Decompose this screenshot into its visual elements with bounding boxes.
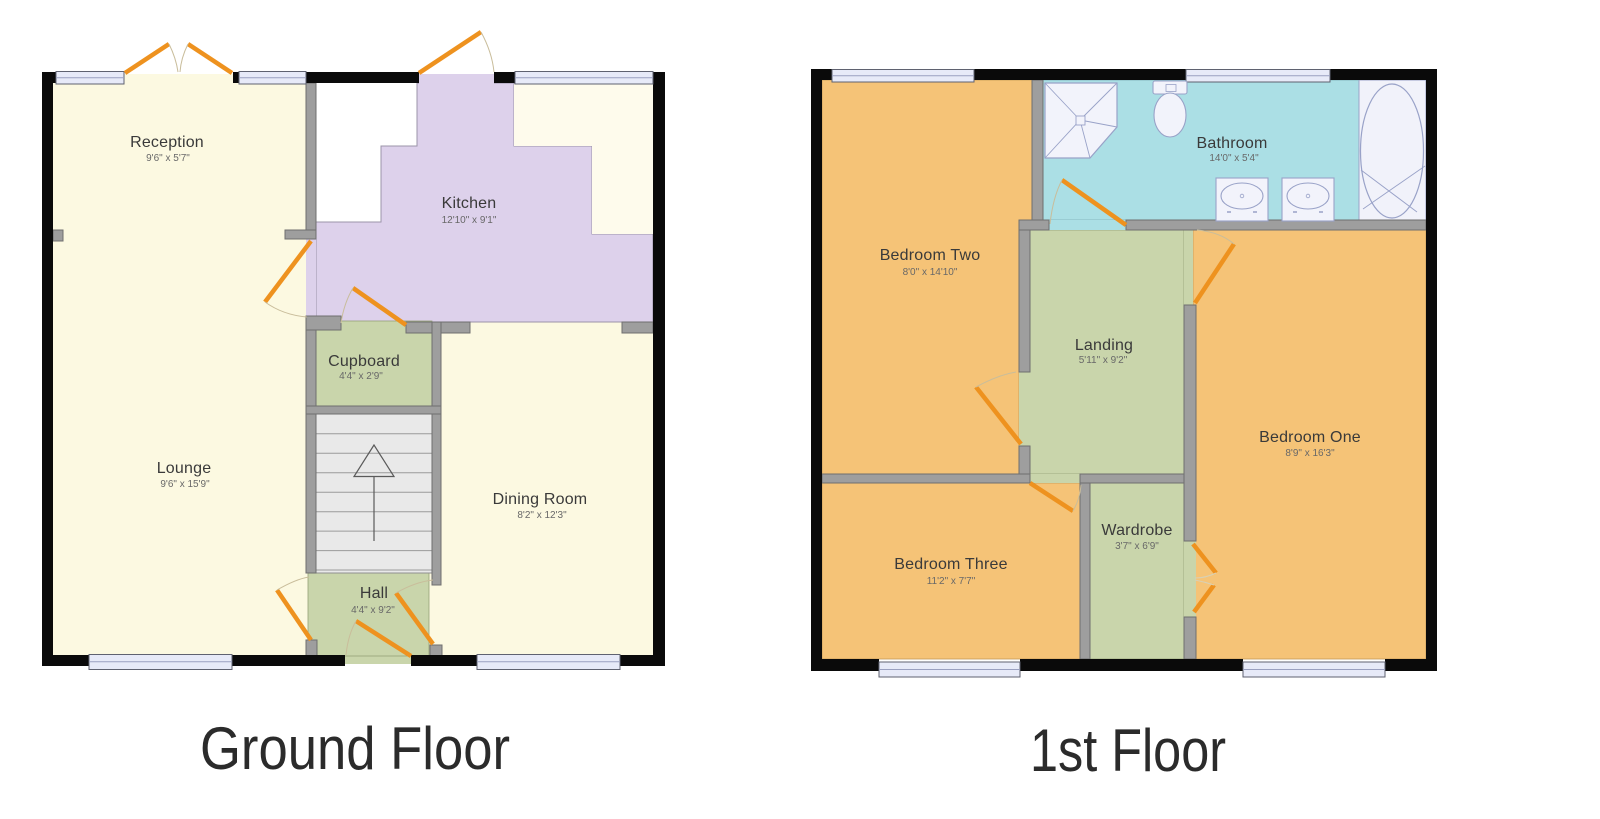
svg-text:1st Floor: 1st Floor bbox=[1030, 717, 1226, 784]
svg-text:Landing: Landing bbox=[1075, 337, 1133, 354]
svg-text:4'4" x 9'2": 4'4" x 9'2" bbox=[351, 605, 395, 616]
svg-text:3'7" x 6'9": 3'7" x 6'9" bbox=[1115, 541, 1159, 552]
svg-text:Bedroom One: Bedroom One bbox=[1259, 429, 1361, 446]
svg-text:Kitchen: Kitchen bbox=[442, 195, 497, 212]
svg-text:Ground Floor: Ground Floor bbox=[200, 715, 510, 782]
svg-text:5'11" x 9'2": 5'11" x 9'2" bbox=[1079, 355, 1128, 366]
svg-text:9'6" x 15'9": 9'6" x 15'9" bbox=[160, 479, 210, 490]
svg-text:14'0" x 5'4": 14'0" x 5'4" bbox=[1209, 153, 1259, 164]
svg-text:8'9" x 16'3": 8'9" x 16'3" bbox=[1285, 448, 1335, 459]
svg-text:Wardrobe: Wardrobe bbox=[1101, 522, 1172, 539]
svg-text:Lounge: Lounge bbox=[157, 460, 212, 477]
svg-text:Hall: Hall bbox=[360, 585, 388, 602]
svg-text:Bedroom Three: Bedroom Three bbox=[894, 556, 1007, 573]
svg-text:Dining Room: Dining Room bbox=[493, 491, 588, 508]
svg-text:8'2" x 12'3": 8'2" x 12'3" bbox=[517, 510, 567, 521]
svg-text:4'4" x 2'9": 4'4" x 2'9" bbox=[339, 371, 383, 382]
svg-text:Reception: Reception bbox=[130, 134, 204, 151]
svg-text:Cupboard: Cupboard bbox=[328, 353, 400, 370]
svg-text:9'6" x 5'7": 9'6" x 5'7" bbox=[146, 153, 190, 164]
svg-text:11'2" x 7'7": 11'2" x 7'7" bbox=[927, 576, 976, 587]
svg-text:Bathroom: Bathroom bbox=[1197, 135, 1268, 152]
svg-text:8'0" x 14'10": 8'0" x 14'10" bbox=[903, 267, 958, 278]
svg-text:Bedroom Two: Bedroom Two bbox=[880, 247, 981, 264]
svg-text:12'10" x 9'1": 12'10" x 9'1" bbox=[442, 215, 497, 226]
